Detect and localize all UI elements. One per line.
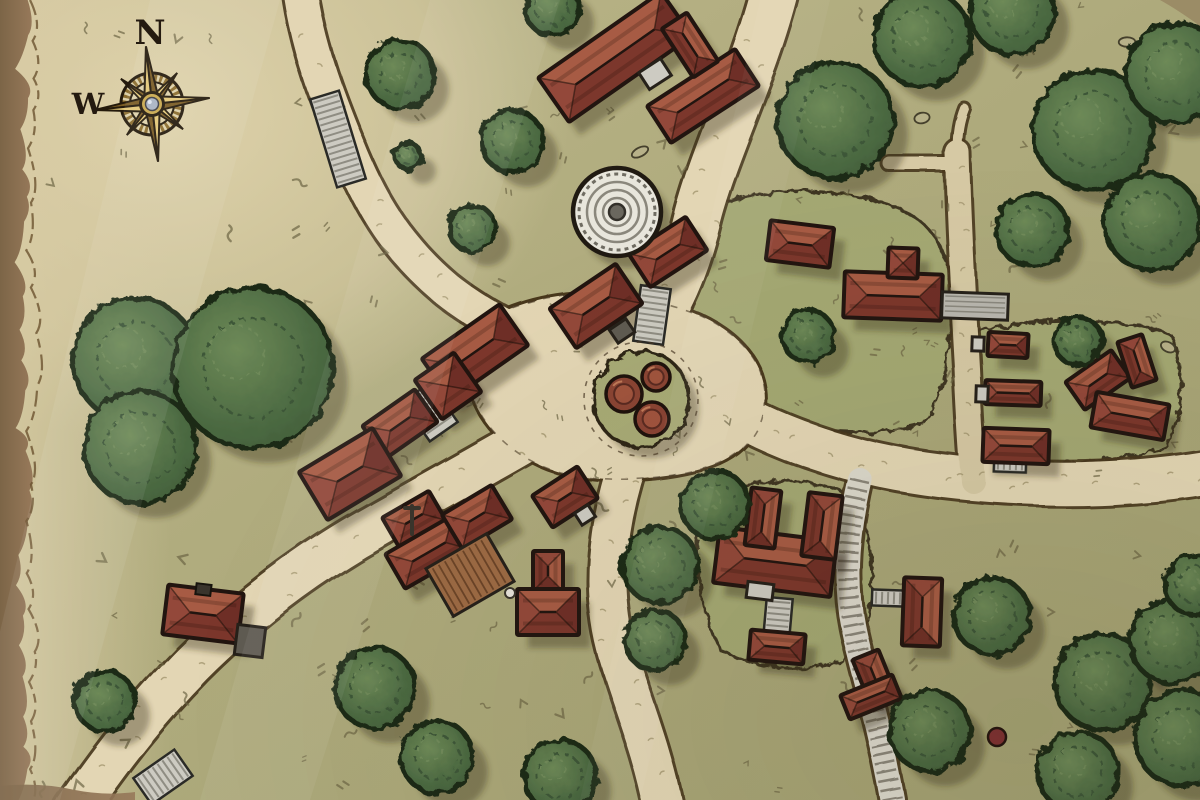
compass-west-label: W (71, 87, 105, 121)
compass-north-label: N (134, 13, 165, 53)
village-map: N W (0, 0, 1200, 800)
lighting-layer (0, 0, 1200, 800)
corner-vignette (0, 0, 1200, 800)
village-map-stage: N W (0, 0, 1200, 800)
